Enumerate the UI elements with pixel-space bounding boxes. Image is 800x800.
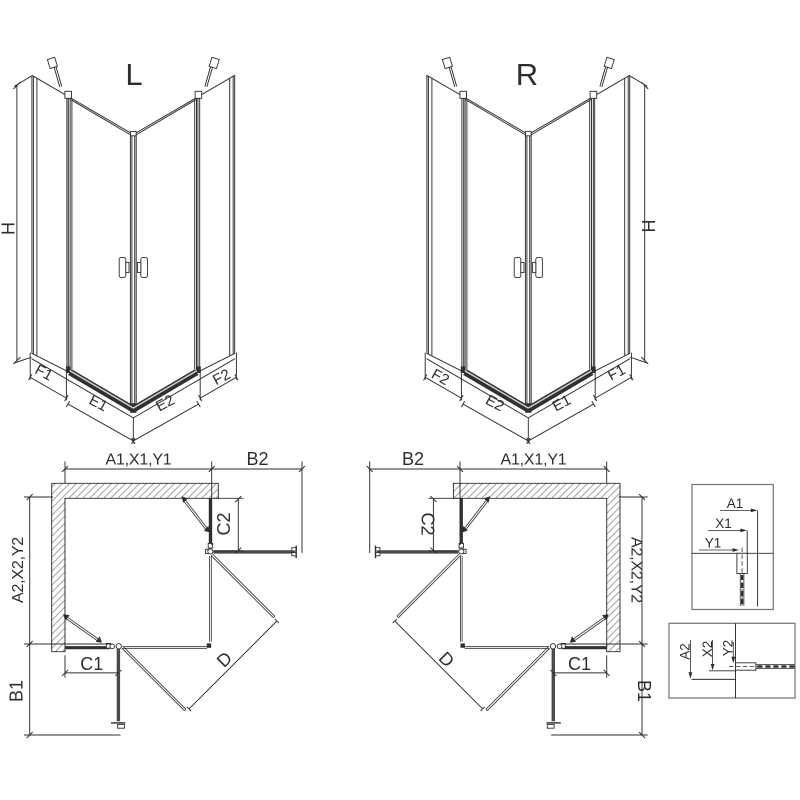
- dim-label-b1: B1: [634, 680, 654, 702]
- dim-label-c2: C2: [418, 512, 438, 535]
- view-title: L: [125, 57, 142, 92]
- detail-box-wall-profile-top: A1 X1 Y1: [692, 485, 773, 610]
- dim-label-b2: B2: [402, 449, 424, 469]
- detail-label-y2: Y2: [721, 640, 736, 657]
- detail-box-wall-profile-bottom: A2 X2 Y2: [669, 623, 795, 698]
- dim-label-d: D: [213, 648, 236, 671]
- dim-label-f1: F1: [32, 361, 55, 384]
- dim-label-h: H: [0, 222, 19, 235]
- dim-label-a2x2y2: A2,X2,Y2: [628, 537, 645, 603]
- view-title: R: [516, 57, 538, 92]
- dim-label-a2x2y2: A2,X2,Y2: [10, 537, 27, 603]
- plan-view-left: A1,X1,Y1 B2 A2,X2,Y2 C2 C1 B1 D: [7, 449, 306, 738]
- dim-label-b2: B2: [246, 449, 268, 469]
- technical-diagram: L H F1 E1 E2 F2 R H F2 E2 E1 F1 A1,X1,Y1…: [0, 0, 800, 800]
- dim-label-f2: F2: [429, 366, 452, 389]
- perspective-view-left: L H F1 E1 E2 F2: [0, 57, 238, 444]
- dim-label-a1x1y1: A1,X1,Y1: [500, 452, 566, 469]
- detail-label-x1: X1: [715, 516, 732, 531]
- dim-label-c1: C1: [80, 654, 103, 674]
- dim-label-b1: B1: [7, 680, 27, 702]
- dim-label-d: D: [435, 648, 458, 671]
- dim-label-a1x1y1: A1,X1,Y1: [105, 452, 171, 469]
- dim-label-c1: C1: [568, 654, 591, 674]
- perspective-view-right: R H F2 E2 E1 F1: [423, 57, 658, 444]
- dim-label-h: H: [638, 220, 658, 233]
- dim-label-c2: C2: [214, 512, 234, 535]
- detail-label-a1: A1: [727, 496, 744, 511]
- detail-label-x2: X2: [700, 641, 715, 658]
- plan-view-right: B2 A1,X1,Y1 A2,X2,Y2 C2 C1 B1 D: [367, 449, 654, 738]
- dim-label-f2: F2: [210, 366, 233, 389]
- detail-label-y1: Y1: [705, 535, 722, 550]
- detail-label-a2: A2: [678, 643, 693, 660]
